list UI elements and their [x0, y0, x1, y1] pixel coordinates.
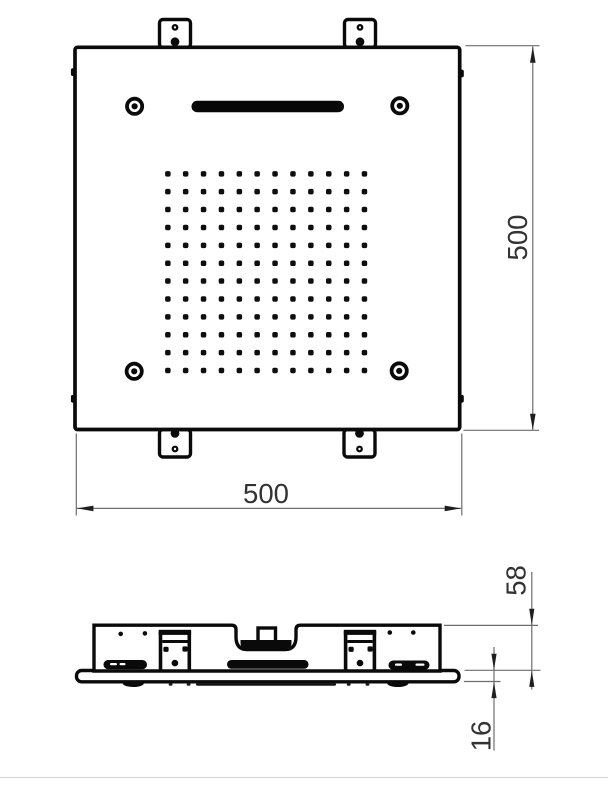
svg-text:16: 16 — [465, 721, 496, 752]
svg-text:500: 500 — [243, 478, 289, 509]
svg-text:500: 500 — [502, 215, 533, 261]
svg-text:58: 58 — [500, 565, 531, 596]
